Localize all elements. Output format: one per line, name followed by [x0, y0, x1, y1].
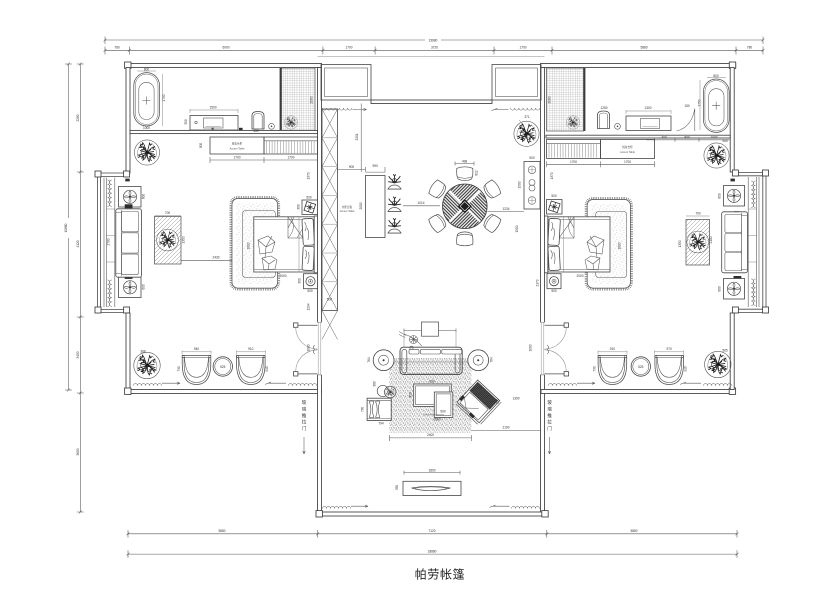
svg-text:1370: 1370 — [307, 172, 311, 179]
svg-text:1300: 1300 — [644, 106, 651, 110]
svg-text:2201: 2201 — [355, 133, 359, 140]
svg-text:600: 600 — [142, 194, 146, 200]
svg-text:门: 门 — [547, 425, 552, 432]
svg-text:900: 900 — [349, 165, 355, 169]
svg-text:1750: 1750 — [698, 99, 702, 106]
svg-text:1800: 1800 — [618, 242, 622, 249]
svg-text:970: 970 — [667, 347, 673, 351]
svg-text:500: 500 — [551, 289, 557, 293]
svg-text:150: 150 — [684, 104, 690, 108]
svg-text:2000: 2000 — [576, 274, 583, 278]
svg-text:450: 450 — [253, 129, 259, 133]
svg-text:368: 368 — [140, 349, 146, 353]
svg-text:1294: 1294 — [307, 303, 311, 310]
svg-text:2179: 2179 — [536, 279, 540, 286]
svg-text:700: 700 — [695, 212, 701, 216]
svg-text:800: 800 — [684, 136, 690, 140]
svg-text:600: 600 — [718, 193, 722, 199]
svg-text:2280: 2280 — [76, 114, 80, 121]
svg-text:764: 764 — [367, 357, 371, 363]
svg-text:910: 910 — [248, 347, 254, 351]
svg-text:1000: 1000 — [307, 344, 311, 351]
svg-text:璃: 璃 — [302, 406, 307, 413]
svg-text:2190: 2190 — [502, 426, 509, 430]
svg-text:500: 500 — [529, 156, 535, 160]
svg-text:帕劳帐篷: 帕劳帐篷 — [415, 567, 465, 582]
svg-text:794: 794 — [378, 422, 384, 426]
svg-text:3720: 3720 — [431, 46, 438, 50]
svg-text:780: 780 — [114, 46, 120, 50]
svg-text:300: 300 — [297, 204, 301, 210]
svg-text:910: 910 — [265, 366, 269, 372]
svg-text:910: 910 — [684, 366, 688, 372]
svg-text:璃: 璃 — [547, 406, 552, 413]
svg-text:Accent Table: Accent Table — [340, 209, 355, 213]
svg-text:500: 500 — [306, 196, 312, 200]
svg-text:730: 730 — [593, 366, 597, 372]
svg-text:380: 380 — [373, 381, 377, 387]
svg-text:玻: 玻 — [547, 399, 552, 406]
svg-text:1350: 1350 — [182, 236, 186, 243]
svg-text:拉: 拉 — [302, 419, 307, 426]
svg-text:梳妆台柜: 梳妆台柜 — [232, 141, 243, 145]
svg-text:7120: 7120 — [428, 529, 435, 533]
svg-text:1060: 1060 — [433, 418, 440, 422]
svg-text:5880: 5880 — [218, 529, 225, 533]
svg-text:4120: 4120 — [76, 240, 80, 247]
svg-text:500: 500 — [551, 194, 557, 198]
svg-text:400: 400 — [661, 136, 667, 140]
svg-text:2700: 2700 — [107, 238, 111, 245]
svg-text:1000: 1000 — [143, 126, 150, 130]
svg-text:拉: 拉 — [547, 419, 552, 426]
svg-text:5880: 5880 — [640, 46, 647, 50]
svg-text:Accent Table: Accent Table — [620, 150, 635, 154]
svg-text:1800: 1800 — [247, 242, 251, 249]
svg-text:525: 525 — [220, 365, 226, 369]
svg-text:990: 990 — [373, 164, 379, 168]
svg-text:565: 565 — [722, 348, 728, 352]
svg-text:1234: 1234 — [502, 207, 509, 211]
svg-text:2000: 2000 — [279, 274, 286, 278]
svg-text:780: 780 — [747, 46, 753, 50]
svg-text:2400: 2400 — [427, 433, 434, 437]
svg-text:10880: 10880 — [64, 223, 68, 232]
svg-text:1350: 1350 — [678, 240, 682, 247]
svg-text:1500: 1500 — [518, 181, 522, 188]
svg-text:1700: 1700 — [287, 156, 294, 160]
svg-text:940: 940 — [194, 347, 200, 351]
svg-text:23680: 23680 — [429, 38, 438, 42]
svg-text:850: 850 — [409, 392, 413, 398]
svg-text:推: 推 — [547, 412, 552, 419]
svg-text:推: 推 — [302, 412, 307, 419]
svg-text:6000: 6000 — [222, 46, 229, 50]
svg-text:1700: 1700 — [570, 160, 577, 164]
svg-text:1700: 1700 — [233, 156, 240, 160]
svg-text:Accent Table: Accent Table — [230, 146, 245, 150]
svg-text:1700: 1700 — [519, 46, 526, 50]
svg-text:600: 600 — [142, 284, 146, 290]
svg-text:500: 500 — [440, 410, 446, 414]
svg-text:1000: 1000 — [710, 136, 717, 140]
svg-text:梳妆台柜: 梳妆台柜 — [622, 145, 633, 149]
svg-text:3600: 3600 — [76, 448, 80, 455]
svg-text:371: 371 — [524, 115, 530, 119]
svg-text:18880: 18880 — [428, 550, 437, 554]
svg-text:764: 764 — [490, 357, 494, 363]
svg-text:3450: 3450 — [76, 351, 80, 358]
svg-text:1500: 1500 — [209, 105, 216, 109]
svg-text:2430: 2430 — [212, 256, 219, 260]
svg-text:700: 700 — [165, 211, 171, 215]
svg-text:2000: 2000 — [310, 96, 314, 103]
svg-text:910: 910 — [610, 347, 616, 351]
svg-text:2100: 2100 — [709, 236, 713, 243]
svg-text:5880: 5880 — [630, 529, 637, 533]
svg-text:1500: 1500 — [515, 225, 519, 232]
svg-text:门: 门 — [302, 425, 307, 432]
svg-text:1000: 1000 — [529, 344, 533, 351]
svg-text:690: 690 — [429, 379, 435, 383]
svg-text:2000: 2000 — [359, 202, 363, 209]
svg-text:1700: 1700 — [345, 46, 352, 50]
svg-text:350: 350 — [184, 119, 188, 125]
svg-text:965: 965 — [722, 139, 728, 143]
svg-text:1390: 1390 — [512, 397, 519, 401]
svg-text:525: 525 — [638, 365, 644, 369]
svg-text:300: 300 — [298, 278, 302, 284]
svg-text:1800: 1800 — [428, 468, 435, 472]
svg-text:350: 350 — [395, 485, 399, 491]
svg-text:2000: 2000 — [548, 96, 552, 103]
svg-text:730: 730 — [361, 407, 365, 413]
svg-text:1014: 1014 — [417, 201, 424, 205]
svg-text:498: 498 — [462, 159, 468, 163]
svg-text:1700: 1700 — [624, 160, 631, 164]
svg-text:玻: 玻 — [302, 399, 307, 406]
svg-text:500: 500 — [307, 289, 313, 293]
svg-text:衣柜层板: 衣柜层板 — [342, 205, 353, 209]
svg-text:500: 500 — [199, 143, 203, 149]
svg-text:1370: 1370 — [550, 172, 554, 179]
svg-text:730: 730 — [177, 366, 181, 372]
svg-text:950: 950 — [495, 399, 499, 405]
svg-text:1250: 1250 — [600, 106, 607, 110]
svg-text:812: 812 — [475, 170, 479, 176]
svg-text:600: 600 — [718, 286, 722, 292]
